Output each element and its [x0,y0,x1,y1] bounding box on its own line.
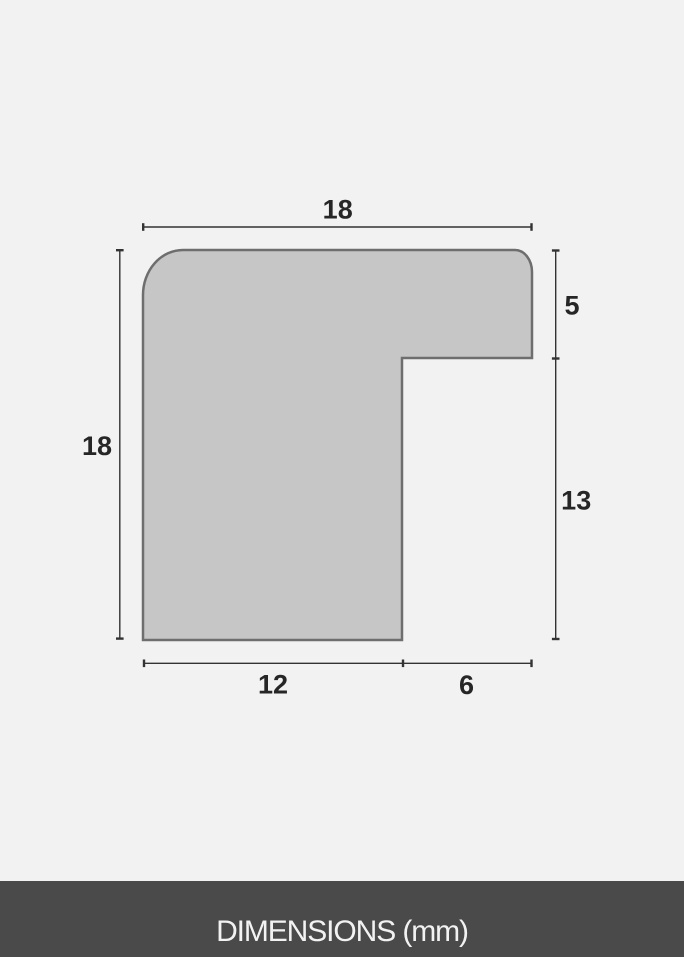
svg-text:13: 13 [561,485,591,515]
svg-text:18: 18 [82,431,112,461]
svg-text:12: 12 [258,670,288,700]
svg-text:5: 5 [564,291,579,321]
svg-text:18: 18 [323,195,353,225]
svg-text:6: 6 [459,670,474,700]
